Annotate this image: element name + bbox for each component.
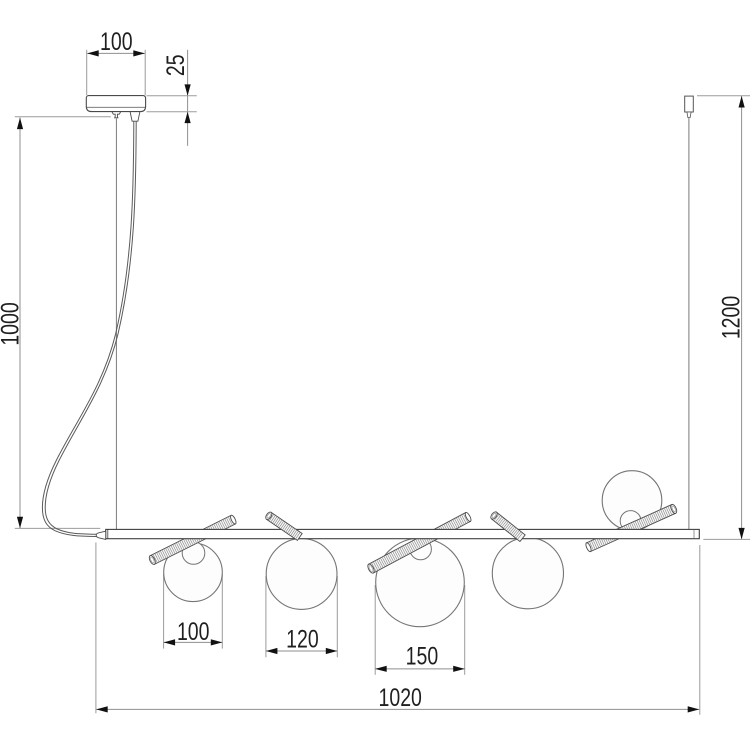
svg-text:100: 100: [177, 617, 210, 645]
svg-text:120: 120: [286, 625, 319, 653]
svg-text:1000: 1000: [0, 302, 24, 345]
svg-text:25: 25: [161, 54, 189, 76]
svg-text:100: 100: [100, 28, 133, 56]
svg-text:1020: 1020: [379, 684, 422, 712]
svg-text:150: 150: [406, 642, 439, 670]
svg-text:1200: 1200: [717, 296, 745, 339]
